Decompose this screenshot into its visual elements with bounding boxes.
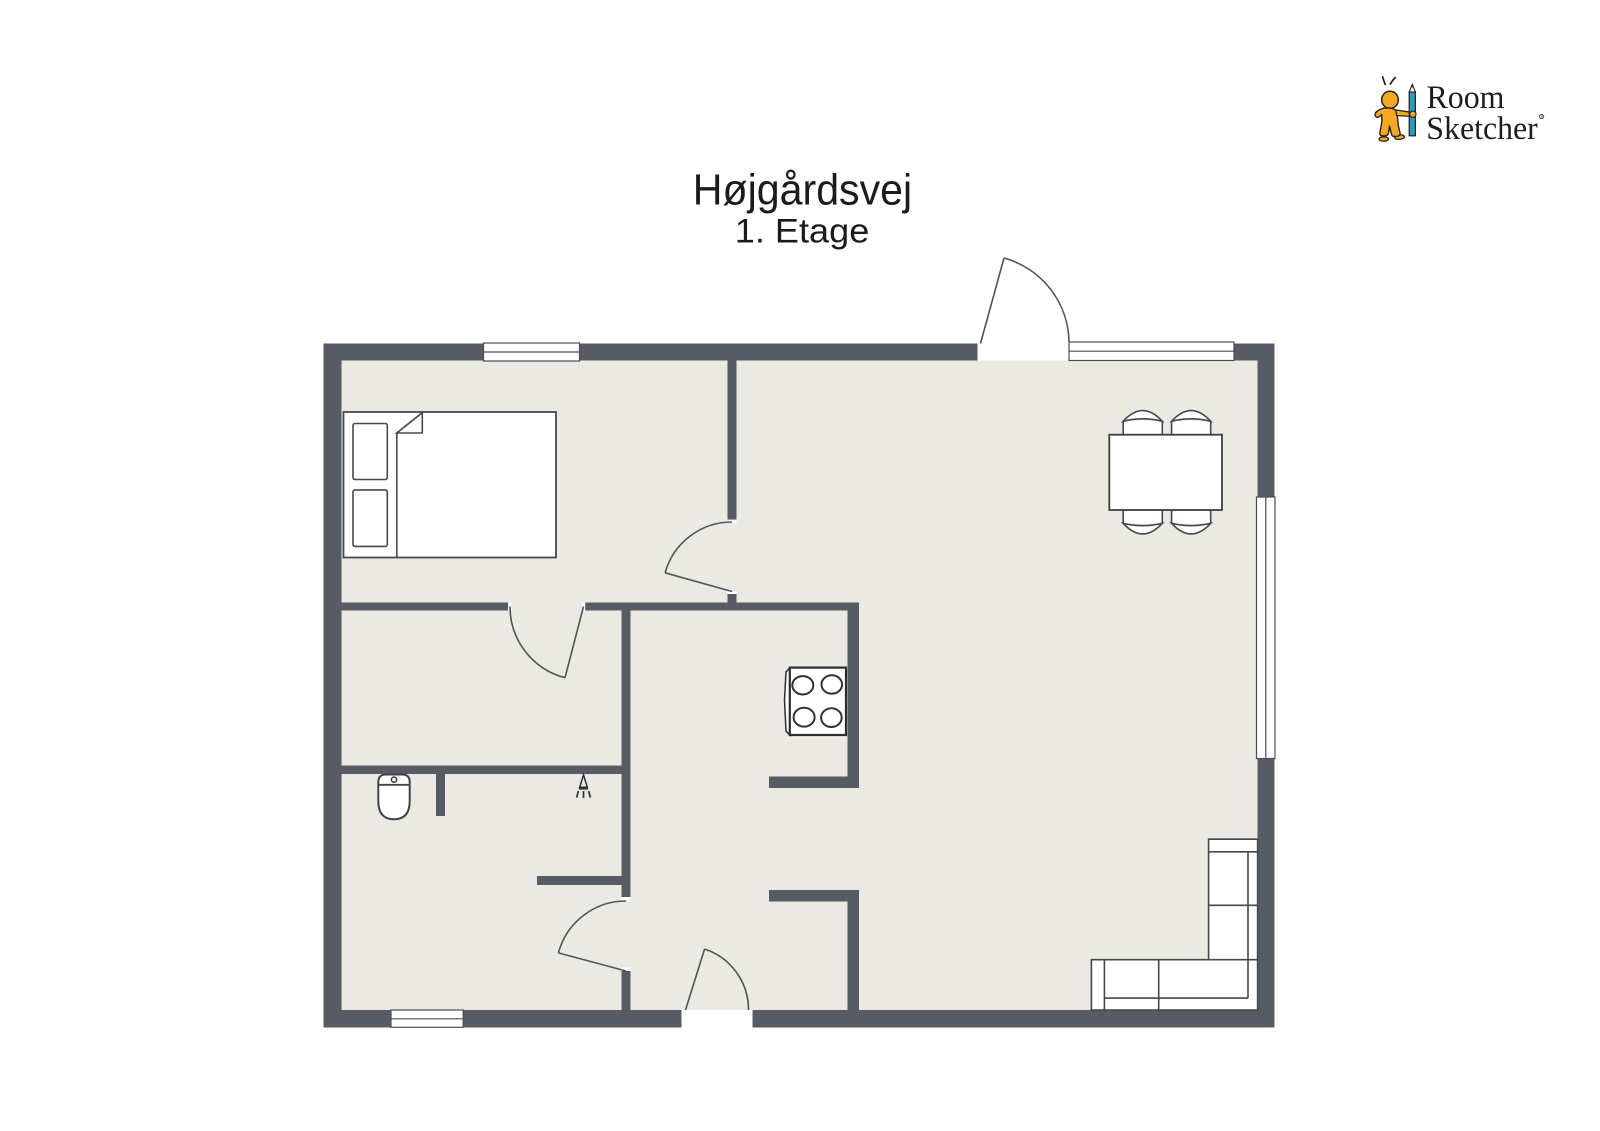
svg-text:Sketcher: Sketcher [1426, 111, 1538, 147]
svg-text:Højgårdsvej: Højgårdsvej [693, 166, 912, 214]
svg-text:1. Etage: 1. Etage [735, 212, 870, 250]
